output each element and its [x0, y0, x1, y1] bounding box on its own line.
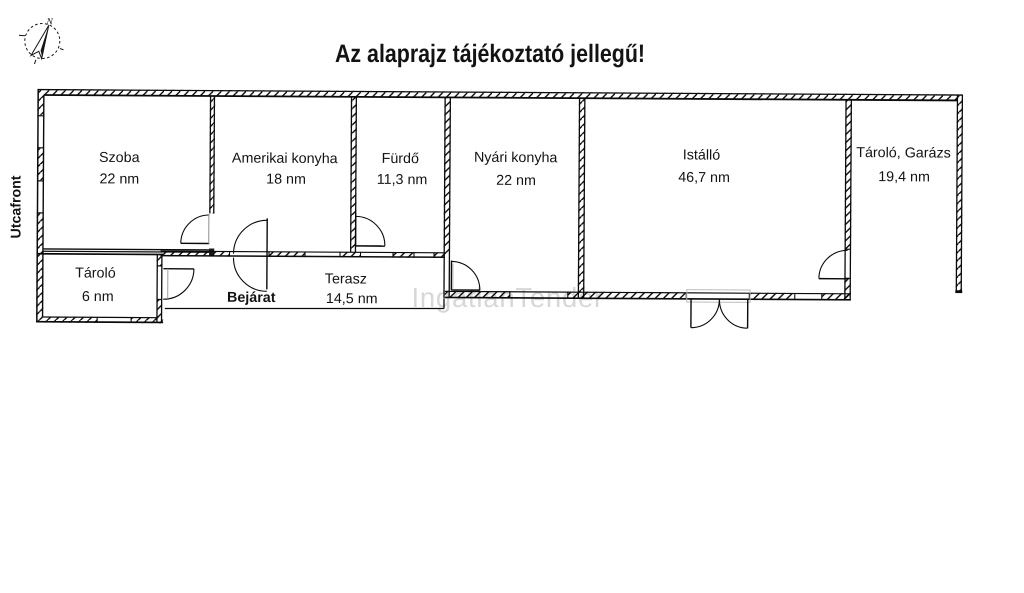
svg-text:Nyári konyha: Nyári konyha [474, 150, 558, 166]
svg-text:18 nm: 18 nm [266, 172, 306, 188]
svg-text:Tároló, Garázs: Tároló, Garázs [856, 145, 951, 162]
svg-text:Az alaprajz tájékoztató jelleg: Az alaprajz tájékoztató jellegű! [335, 40, 645, 68]
svg-text:Fürdő: Fürdő [382, 151, 419, 167]
svg-text:22 nm: 22 nm [99, 171, 139, 187]
svg-text:Istálló: Istálló [683, 147, 720, 163]
svg-text:N: N [46, 18, 54, 28]
svg-text:Utcafront: Utcafront [9, 175, 25, 238]
svg-text:6 nm: 6 nm [82, 289, 114, 305]
svg-text:11,3 nm: 11,3 nm [377, 172, 428, 188]
svg-text:19,4 nm: 19,4 nm [878, 169, 930, 185]
svg-text:Szoba: Szoba [99, 150, 140, 166]
svg-text:Bejárat: Bejárat [227, 290, 276, 306]
svg-text:22 nm: 22 nm [496, 173, 536, 189]
svg-text:Terasz: Terasz [325, 271, 367, 287]
svg-text:Tároló: Tároló [75, 265, 116, 281]
svg-text:Amerikai konyha: Amerikai konyha [232, 151, 338, 168]
svg-text:14,5 nm: 14,5 nm [326, 291, 378, 307]
svg-text:46,7 nm: 46,7 nm [678, 170, 730, 186]
